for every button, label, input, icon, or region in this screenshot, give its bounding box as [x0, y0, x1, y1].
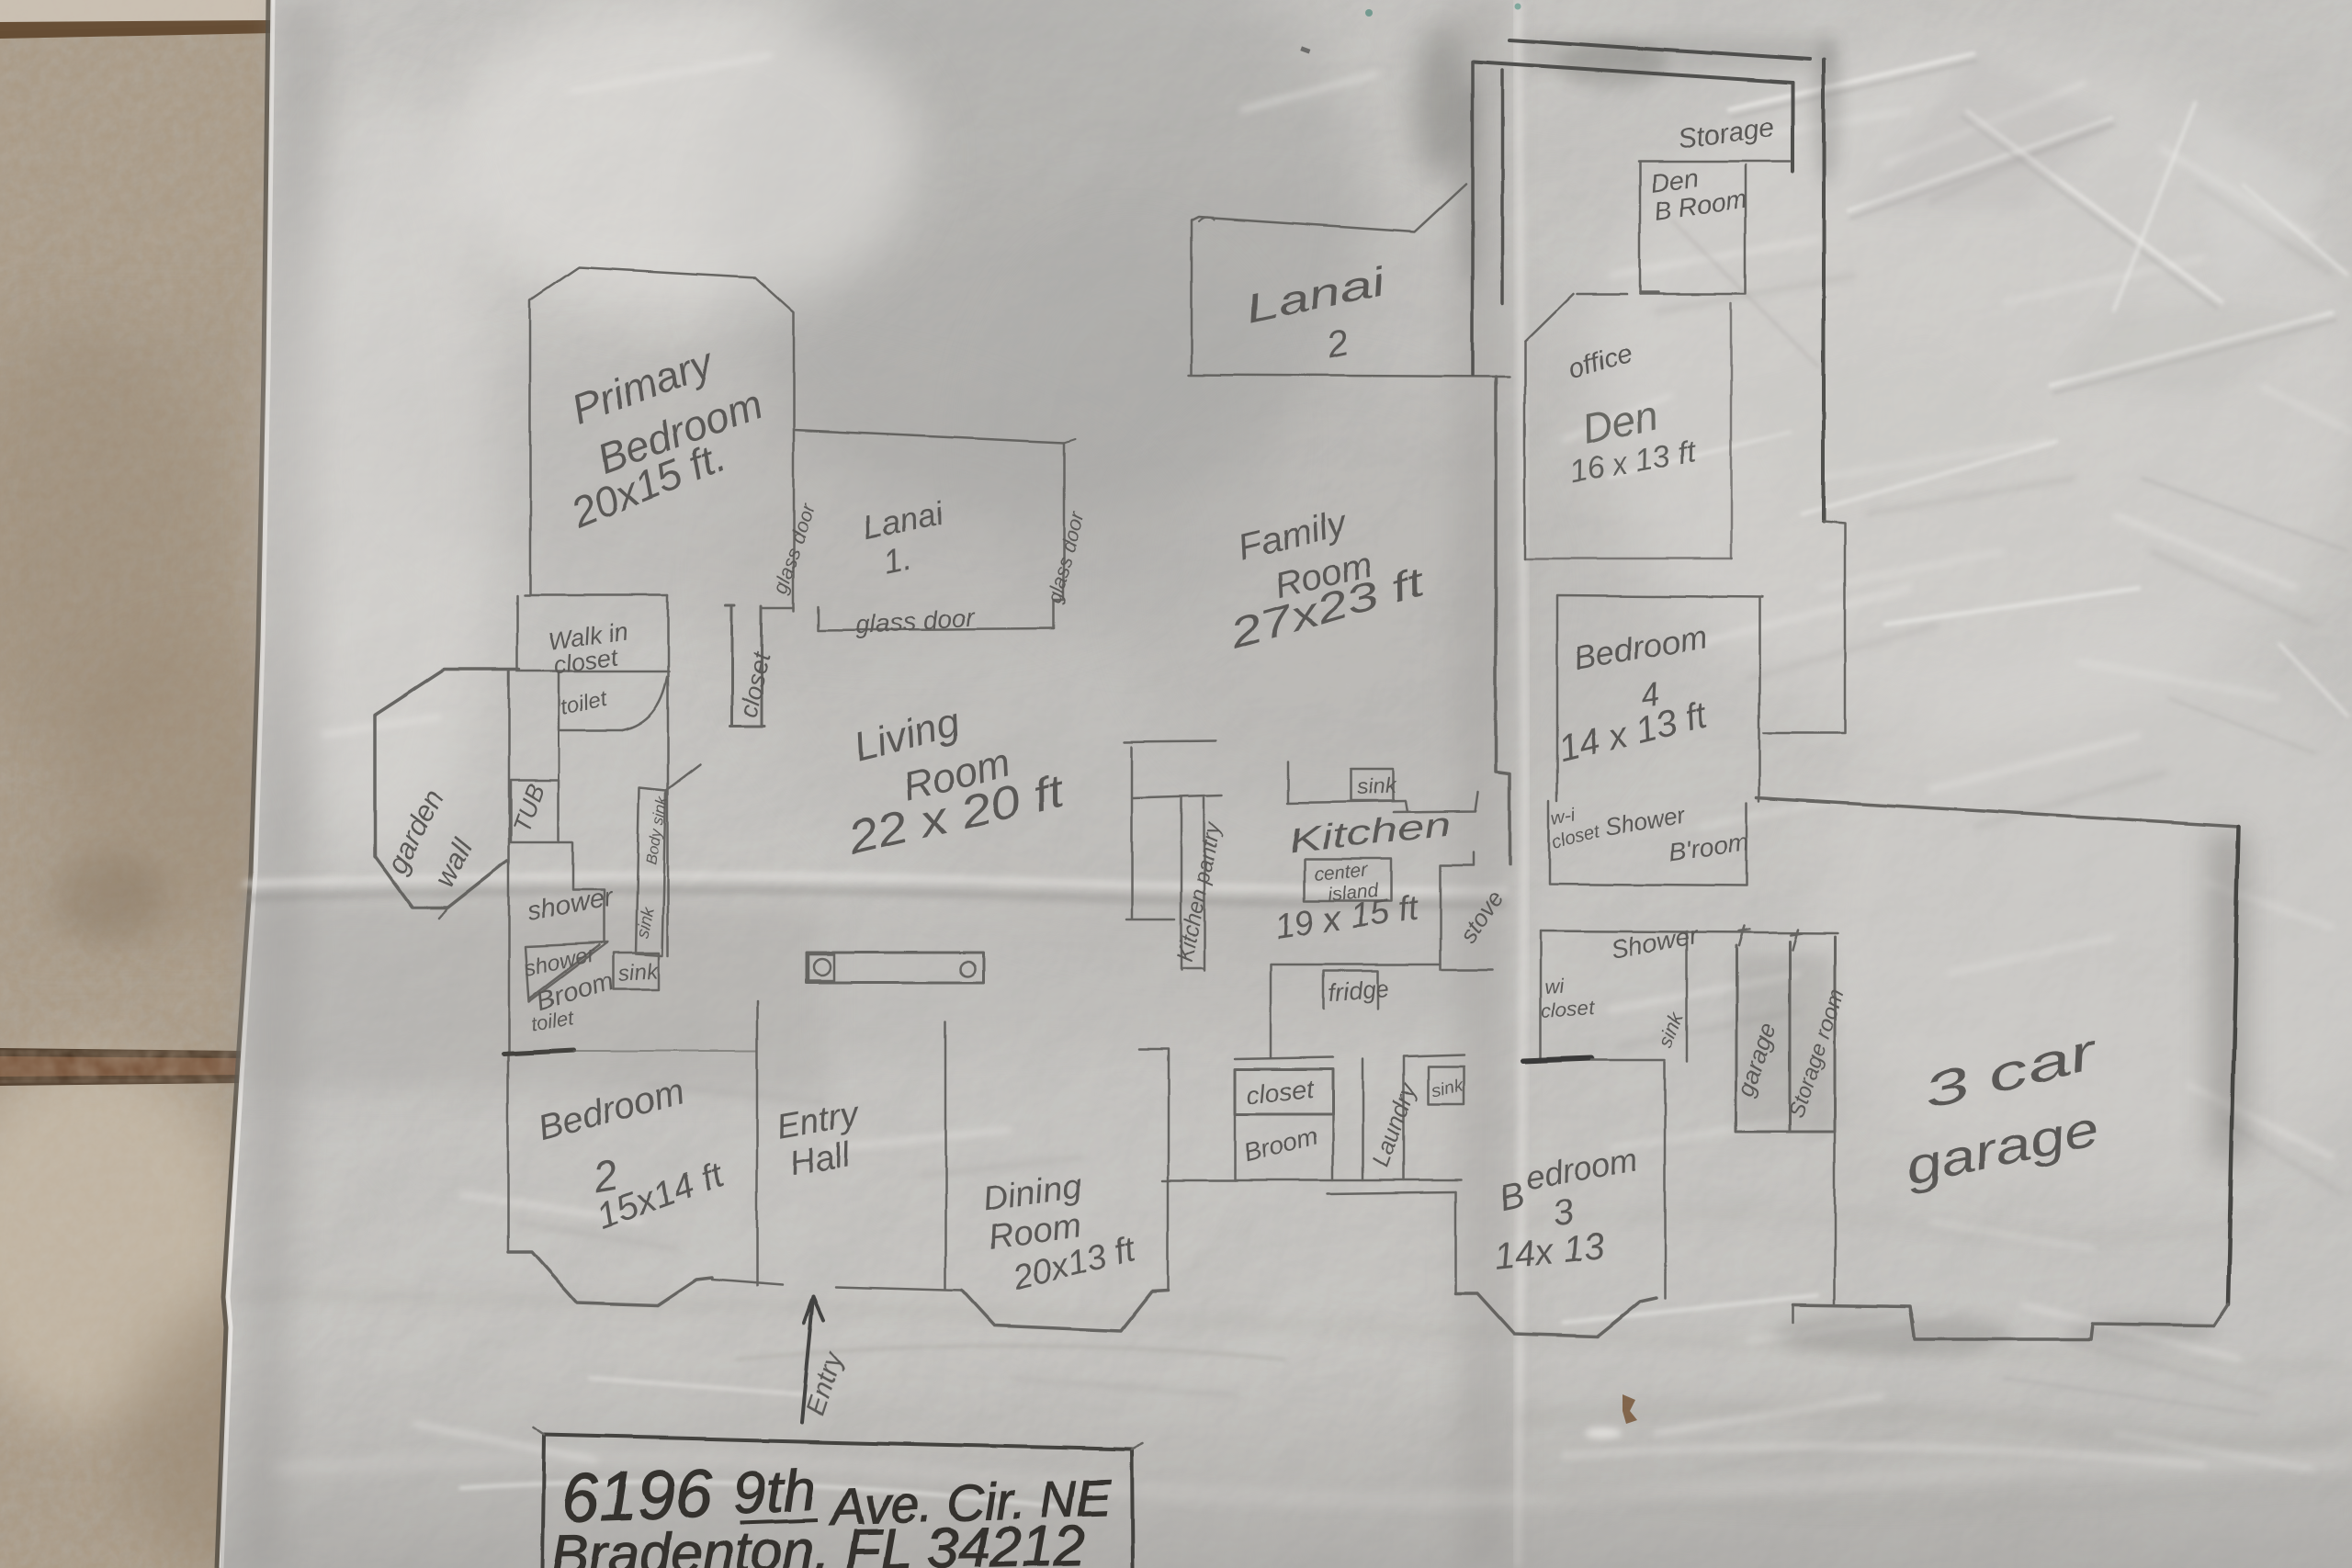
- svg-text:sink: sink: [1356, 773, 1398, 800]
- svg-text:sink: sink: [617, 958, 661, 987]
- svg-text:wi: wi: [1544, 975, 1566, 998]
- svg-text:w-i: w-i: [1550, 806, 1577, 829]
- svg-text:Bradenton, FL 34212: Bradenton, FL 34212: [550, 1515, 1086, 1568]
- svg-text:closet: closet: [1541, 996, 1596, 1022]
- svg-text:fridge: fridge: [1328, 974, 1389, 1007]
- svg-text:9th: 9th: [732, 1456, 818, 1527]
